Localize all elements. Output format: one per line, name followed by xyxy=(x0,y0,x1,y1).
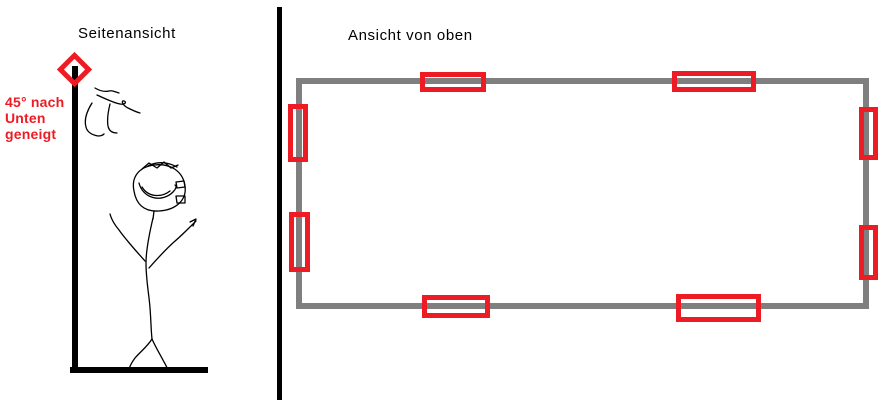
view-ray-sketch xyxy=(85,88,140,136)
tilted-camera-marker xyxy=(57,52,92,87)
sensor-marker-bottom-6 xyxy=(676,294,761,322)
annotation-line-3: geneigt xyxy=(5,126,64,142)
sensor-marker-left-8 xyxy=(289,212,310,272)
floor-line xyxy=(70,367,208,373)
top-view-title: Ansicht von oben xyxy=(348,27,473,44)
wall-line xyxy=(72,66,78,372)
sensor-marker-top-1 xyxy=(420,72,486,92)
divider-line xyxy=(277,7,282,400)
annotation-line-2: Unten xyxy=(5,110,64,126)
sensor-marker-right-4 xyxy=(859,225,878,280)
sensor-marker-top-2 xyxy=(672,71,756,92)
sensor-marker-right-3 xyxy=(859,107,878,160)
stick-figure xyxy=(110,162,196,370)
side-view-title: Seitenansicht xyxy=(78,25,176,42)
paint-canvas: Seitenansicht 45° nach Unten geneigt xyxy=(0,0,881,406)
annotation-line-1: 45° nach xyxy=(5,94,64,110)
sensor-marker-left-7 xyxy=(288,104,308,162)
sensor-marker-bottom-5 xyxy=(422,295,490,318)
room-outline xyxy=(296,78,869,309)
camera-tilt-annotation: 45° nach Unten geneigt xyxy=(5,94,64,142)
